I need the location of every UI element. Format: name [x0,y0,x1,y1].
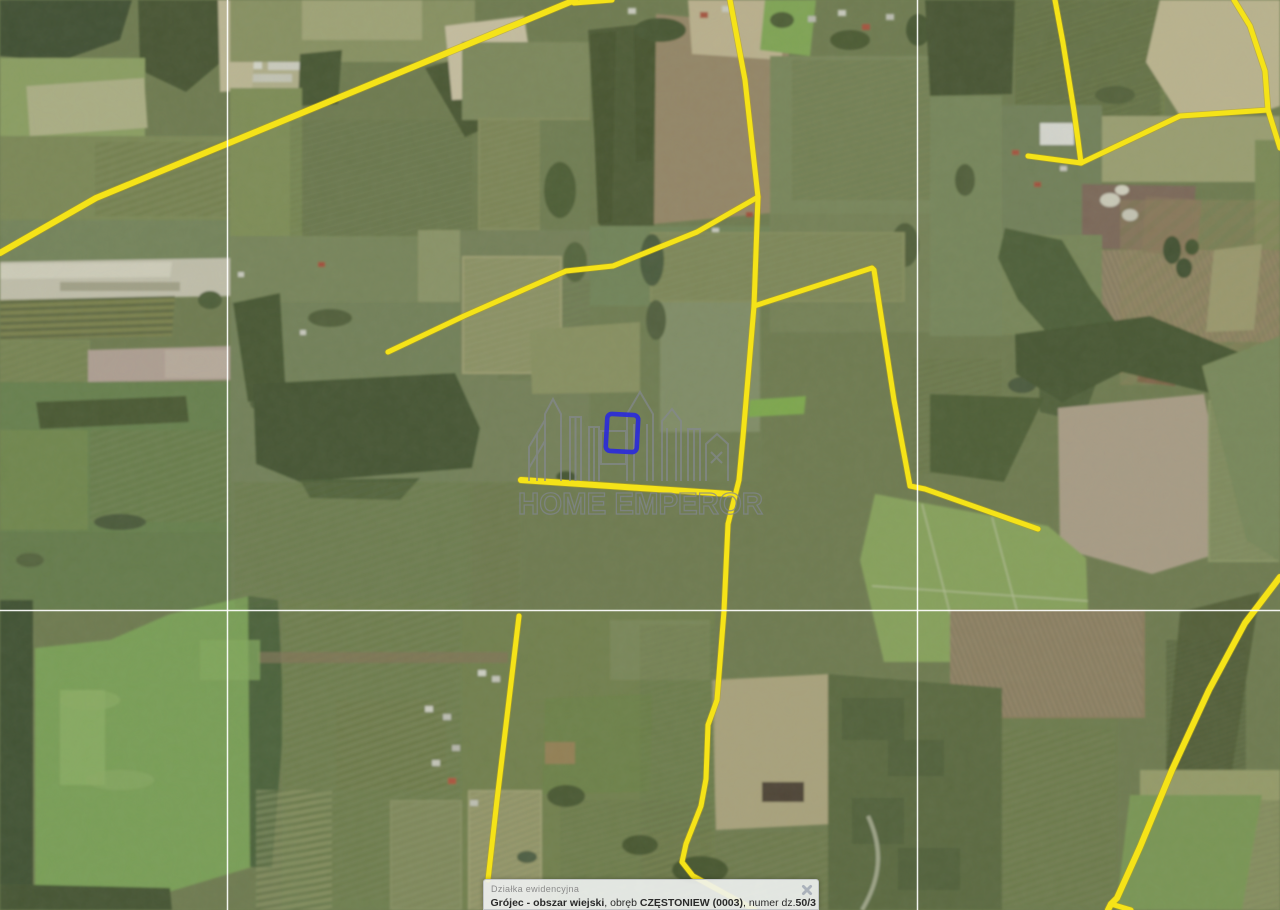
svg-text:HOME EMPEROR: HOME EMPEROR [518,486,763,521]
